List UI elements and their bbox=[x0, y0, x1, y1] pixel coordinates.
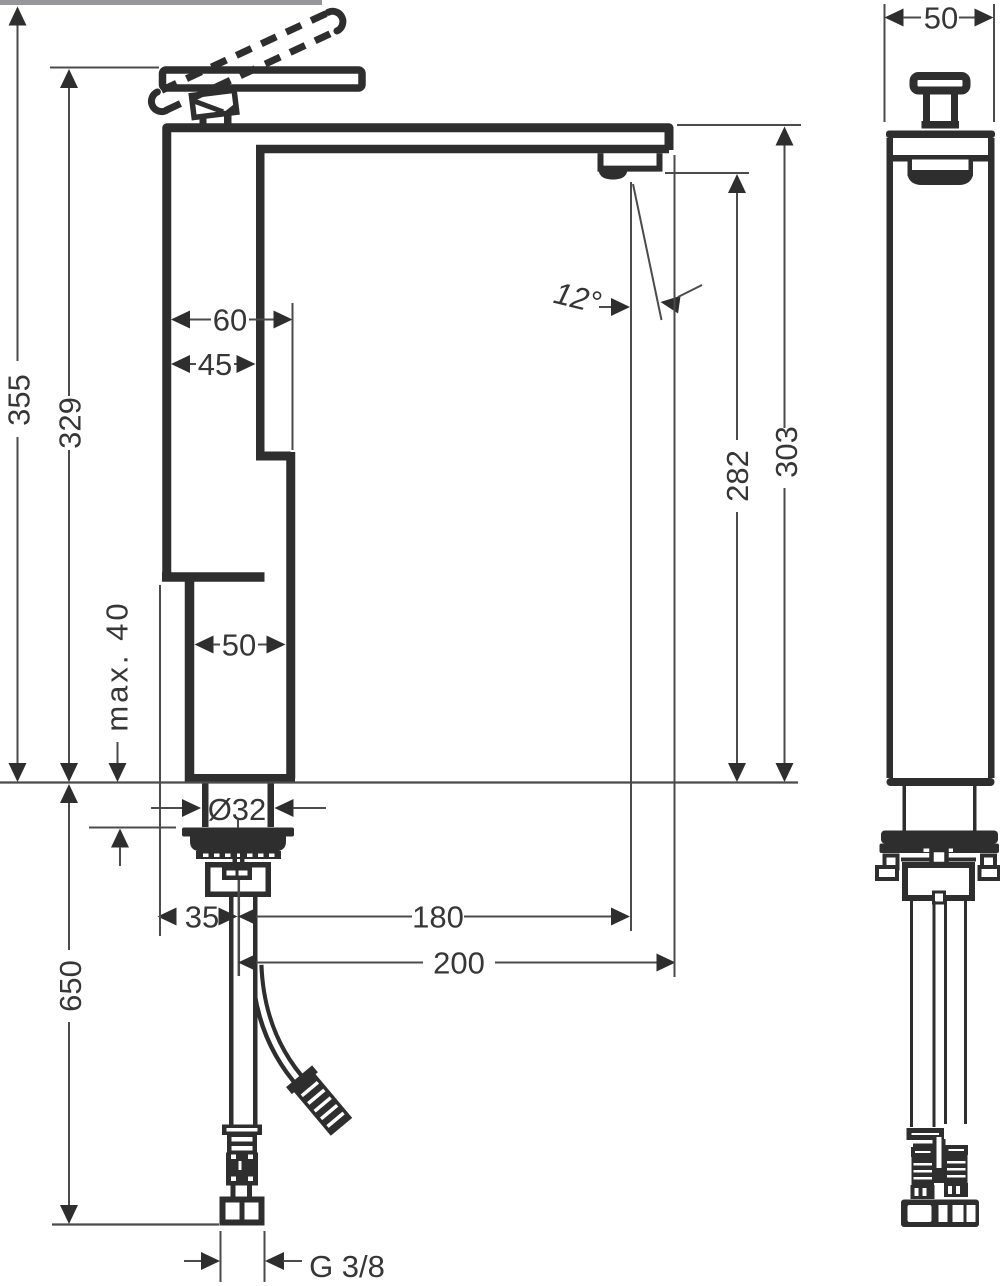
svg-text:50: 50 bbox=[222, 628, 256, 663]
svg-text:45: 45 bbox=[198, 347, 232, 382]
svg-text:650: 650 bbox=[53, 960, 88, 1012]
svg-text:G 3/8: G 3/8 bbox=[309, 1249, 385, 1284]
svg-text:355: 355 bbox=[2, 374, 37, 426]
svg-text:max. 40: max. 40 bbox=[100, 600, 135, 731]
svg-text:303: 303 bbox=[769, 426, 804, 478]
svg-text:200: 200 bbox=[433, 946, 485, 981]
svg-text:35: 35 bbox=[185, 900, 219, 935]
svg-text:329: 329 bbox=[53, 397, 88, 449]
svg-text:60: 60 bbox=[213, 303, 247, 338]
svg-text:282: 282 bbox=[720, 450, 755, 502]
svg-text:50: 50 bbox=[924, 1, 958, 36]
svg-text:180: 180 bbox=[412, 900, 464, 935]
svg-text:Ø32: Ø32 bbox=[208, 792, 267, 827]
